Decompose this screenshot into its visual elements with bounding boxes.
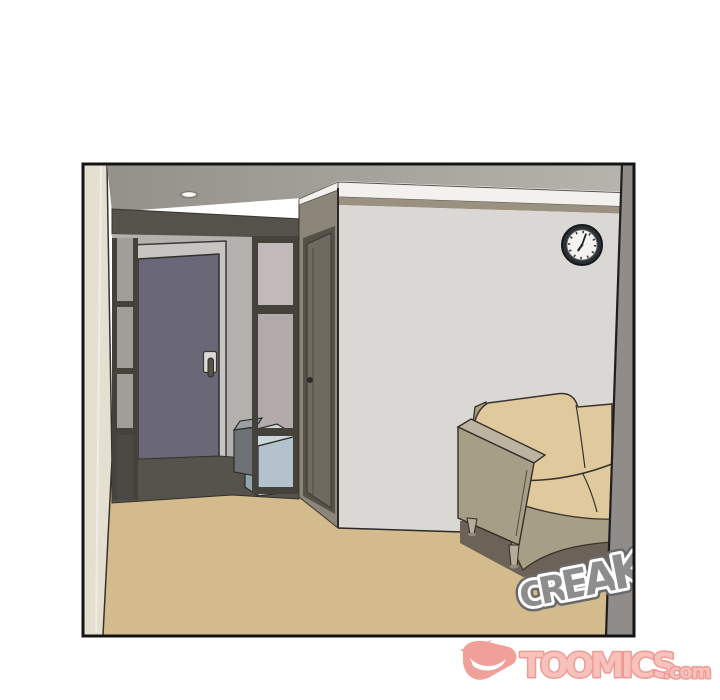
entrance-door (138, 254, 219, 463)
shoe-shelf-left (112, 238, 138, 500)
side-door (303, 226, 335, 514)
side-door-knob (307, 377, 313, 383)
comic-page: CREAK CREAK TOOMICS .com (0, 0, 720, 700)
panel-interior: CREAK CREAK (84, 164, 654, 636)
ceiling-light-lamp (182, 192, 197, 198)
toomics-logo-suffix: .com (663, 661, 711, 683)
comic-panel-image: CREAK CREAK TOOMICS .com (0, 0, 720, 700)
toomics-logo-text: TOOMICS (520, 646, 674, 686)
wall-clock (562, 225, 602, 265)
watermark-logo: TOOMICS .com (460, 640, 711, 686)
sofa-leg (509, 545, 519, 569)
toomics-logo-icon (460, 640, 516, 680)
ceiling-light (179, 191, 200, 199)
